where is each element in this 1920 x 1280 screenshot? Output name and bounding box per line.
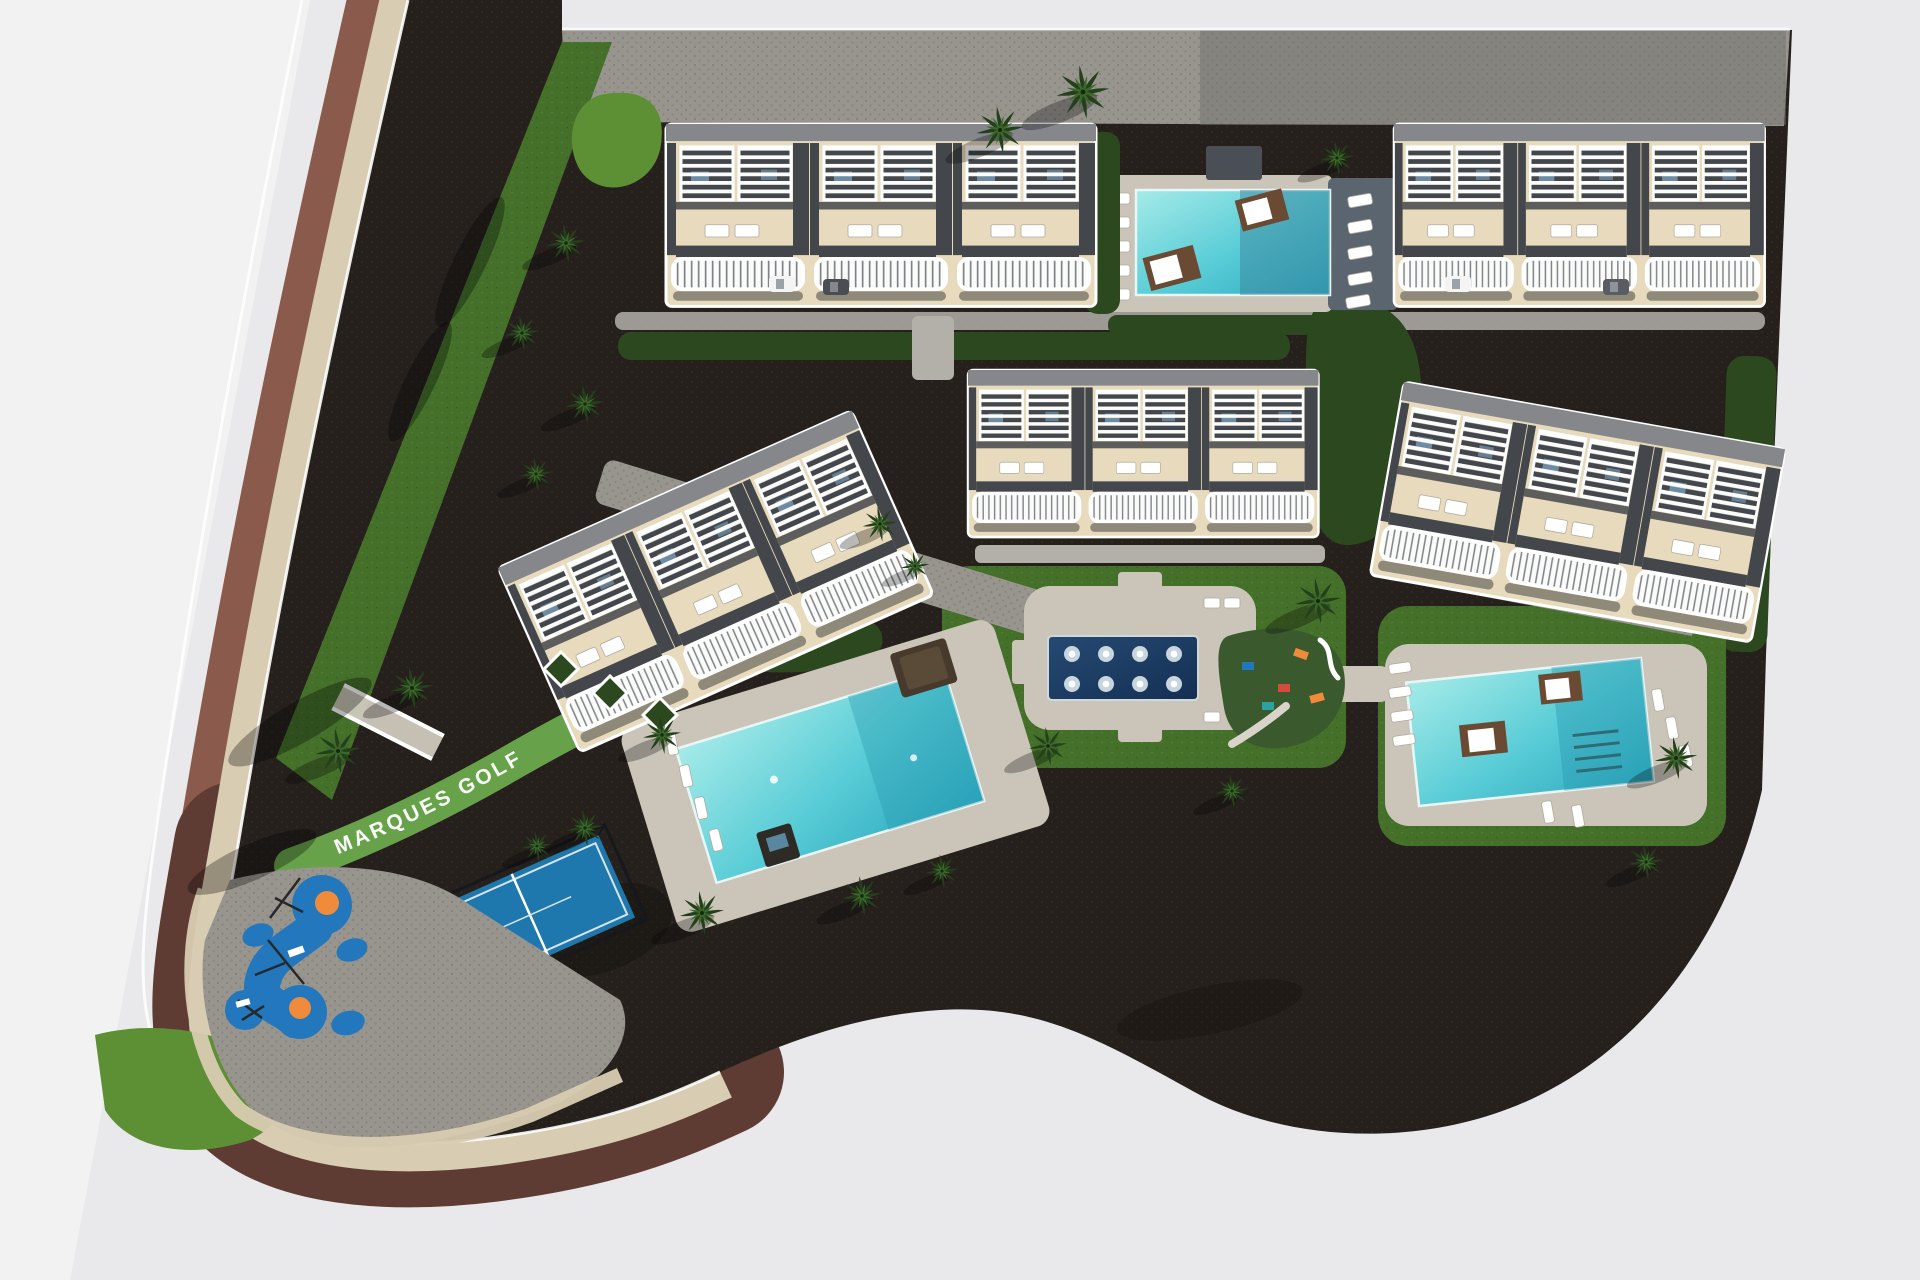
apartment-block-1 <box>666 124 1096 306</box>
east-pool-daybed <box>1459 721 1508 758</box>
east-pool-area <box>1385 644 1707 828</box>
north-paver-shaded <box>1200 31 1786 125</box>
north-pool-hedge <box>1108 315 1398 335</box>
north-connector-walk <box>912 316 954 380</box>
east-pool-daybed <box>1538 670 1583 704</box>
apartment-block-3 <box>968 370 1318 537</box>
mid-building-walk <box>975 545 1325 563</box>
aerial-site-plan: MARQUES GOLF <box>0 0 1920 1280</box>
north-pool-pergola <box>1206 146 1262 180</box>
